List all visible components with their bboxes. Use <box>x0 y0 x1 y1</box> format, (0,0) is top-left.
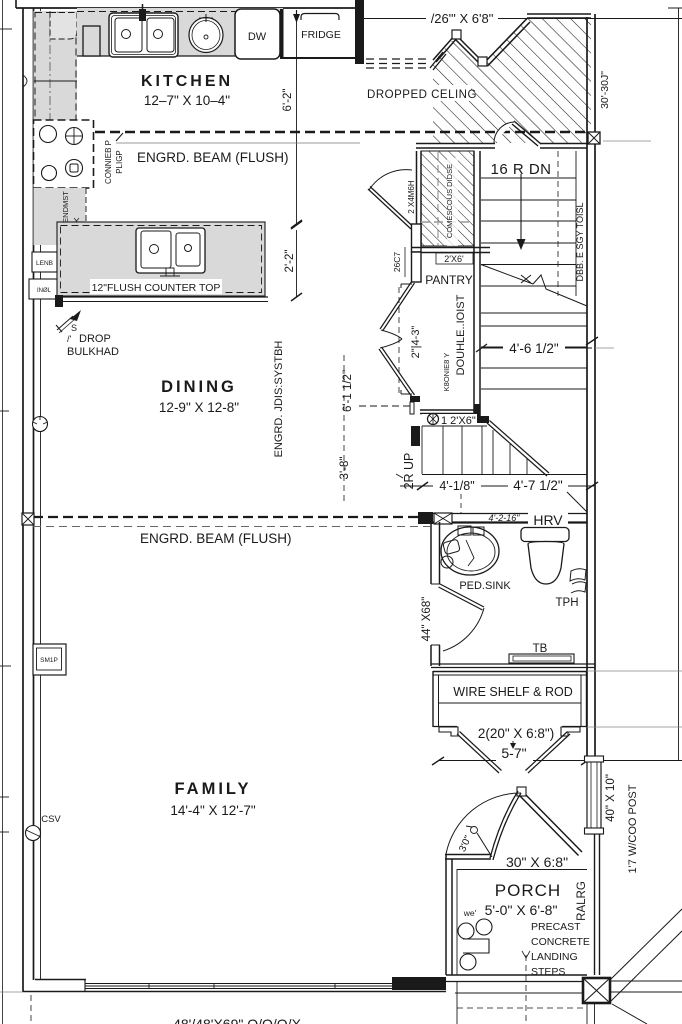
svg-text:FRIDGE: FRIDGE <box>301 29 341 41</box>
svg-text:ENGRD. BEAM (FLUSH): ENGRD. BEAM (FLUSH) <box>137 150 289 165</box>
svg-text:4'-7 1/2": 4'-7 1/2" <box>513 478 563 493</box>
svg-text:RALRG: RALRG <box>576 881 588 921</box>
svg-text:2 X4M6H: 2 X4M6H <box>407 180 416 214</box>
svg-text:14'-4" X 12'-7": 14'-4" X 12'-7" <box>170 803 255 818</box>
svg-text:4'-1/8": 4'-1/8" <box>439 479 474 493</box>
svg-text:BULKHAD: BULKHAD <box>67 346 119 358</box>
svg-text:K8ONIE8 Y: K8ONIE8 Y <box>442 353 451 392</box>
svg-text:2R UP: 2R UP <box>402 453 416 490</box>
svg-text:PORCH: PORCH <box>495 881 561 900</box>
svg-text:INØL: INØL <box>37 288 52 294</box>
svg-text:ENGRD. JDIS:SYSTBH: ENGRD. JDIS:SYSTBH <box>273 341 285 458</box>
svg-text:S: S <box>71 323 77 333</box>
svg-text:COMESCOUS DIDSE: COMESCOUS DIDSE <box>445 164 454 238</box>
svg-text:LANDING: LANDING <box>531 951 578 963</box>
svg-text:1 2'X6": 1 2'X6" <box>441 415 476 427</box>
svg-text:/26"' X 6'8": /26"' X 6'8" <box>431 11 494 26</box>
svg-text:DOUHLE..IOIST: DOUHLE..IOIST <box>455 294 467 375</box>
svg-text:HRV: HRV <box>533 512 563 528</box>
svg-text:12-9" X 12-8": 12-9" X 12-8" <box>159 400 239 415</box>
svg-text:3'-8": 3'-8" <box>339 457 351 480</box>
svg-text:FAMILY: FAMILY <box>175 780 252 798</box>
svg-text:CSV: CSV <box>41 814 61 825</box>
svg-text:DINING: DINING <box>161 378 237 396</box>
svg-text:48'/48'X69" O/O/O/X: 48'/48'X69" O/O/O/X <box>173 1016 301 1024</box>
svg-text:DROPPED CELING: DROPPED CELING <box>367 89 477 101</box>
svg-text:5'-0" X 6'-8": 5'-0" X 6'-8" <box>485 902 558 918</box>
svg-text:40" X 10": 40" X 10" <box>605 774 617 822</box>
svg-text:DBB. E SGY TOISL: DBB. E SGY TOISL <box>575 202 585 281</box>
svg-text:TPH: TPH <box>556 597 579 609</box>
svg-text:2'X6': 2'X6' <box>444 254 464 264</box>
svg-text:12"FLUSH COUNTER TOP: 12"FLUSH COUNTER TOP <box>92 282 221 294</box>
svg-text:PLIGP: PLIGP <box>115 150 124 174</box>
svg-text:SM1P: SM1P <box>40 657 58 664</box>
svg-text:30'-30J": 30'-30J" <box>599 71 611 109</box>
svg-text:ENDMST: ENDMST <box>61 191 70 223</box>
svg-text:6'-2": 6'-2" <box>282 89 294 112</box>
svg-text:4'-2-16": 4'-2-16" <box>489 513 521 523</box>
svg-text:WIRE SHELF & ROD: WIRE SHELF & ROD <box>453 685 572 699</box>
svg-text:5-7": 5-7" <box>501 745 526 761</box>
svg-text:DW: DW <box>248 31 267 43</box>
svg-text:2'-2": 2'-2" <box>284 250 296 273</box>
svg-text:PANTRY: PANTRY <box>425 273 473 287</box>
svg-text:PRECAST: PRECAST <box>531 921 581 933</box>
svg-text:CONCRETE: CONCRETE <box>531 936 590 948</box>
svg-text:4'-6 1/2": 4'-6 1/2" <box>509 341 559 356</box>
svg-text:2"|4-3": 2"|4-3" <box>410 326 422 359</box>
svg-text:2(20" X 6:8"): 2(20" X 6:8") <box>478 726 554 741</box>
svg-text:CONNIEB P: CONNIEB P <box>104 140 113 184</box>
svg-text:we': we' <box>463 908 477 918</box>
svg-text:12–7" X 10–4": 12–7" X 10–4" <box>144 93 230 108</box>
svg-text:30" X 6:8": 30" X 6:8" <box>506 854 568 870</box>
svg-text:44" X68": 44" X68" <box>421 597 433 642</box>
svg-text:STEPS: STEPS <box>531 966 565 978</box>
svg-text:ENGRD. BEAM (FLUSH): ENGRD. BEAM (FLUSH) <box>140 531 292 546</box>
svg-text:DROP: DROP <box>79 333 111 345</box>
svg-text:/': /' <box>67 334 72 344</box>
svg-text:1'7 W/COO POST: 1'7 W/COO POST <box>627 784 639 873</box>
svg-text:TB: TB <box>533 643 548 655</box>
svg-text:KITCHEN: KITCHEN <box>141 73 233 90</box>
svg-text:LENB: LENB <box>36 260 53 267</box>
svg-text:26C7: 26C7 <box>392 252 402 273</box>
svg-text:PED.SINK: PED.SINK <box>459 580 511 592</box>
